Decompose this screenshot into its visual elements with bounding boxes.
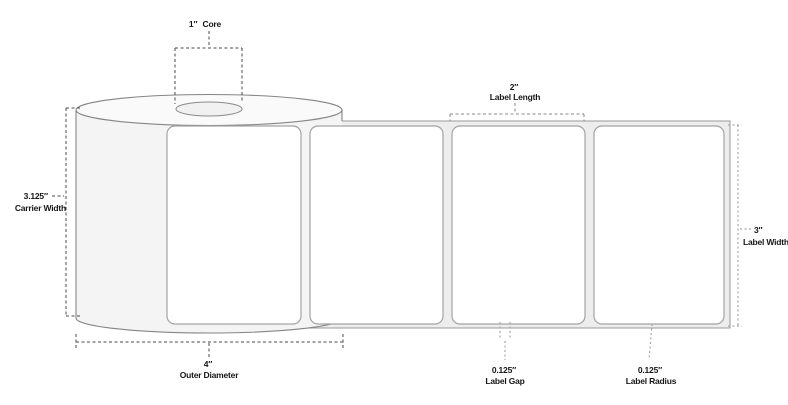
outer-diameter-bracket	[76, 334, 343, 350]
core-text: 1″ Core	[189, 19, 222, 29]
outer-diameter-annotation: 4″ Outer Diameter	[76, 334, 343, 380]
carrier-width-text: 3.125″ Carrier Width	[15, 191, 66, 213]
label-length-text: 2″ Label Length	[490, 82, 541, 102]
label-width-annotation: 3″ Label Width	[728, 125, 788, 326]
label-width-text: 3″ Label Width	[743, 225, 788, 247]
label-length-bracket	[450, 114, 584, 121]
label-radius-text: 0.125″ Label Radius	[626, 365, 677, 386]
label-radius-annotation: 0.125″ Label Radius	[626, 324, 677, 386]
label-gap-annotation: 0.125″ Label Gap	[485, 322, 524, 386]
core-annotation: 1″ Core	[175, 19, 242, 104]
carrier-width-annotation: 3.125″ Carrier Width	[15, 108, 80, 316]
label-gap-text: 0.125″ Label Gap	[485, 365, 524, 386]
outer-diameter-text: 4″ Outer Diameter	[180, 359, 240, 380]
label-4	[594, 126, 724, 324]
label-radius-pointer-line	[649, 324, 652, 360]
label-length-annotation: 2″ Label Length	[450, 82, 584, 121]
label-roll-diagram: 1″ Core 2″ Label Length 3.125″ Carrier W…	[0, 0, 788, 405]
roll-core-hole	[176, 102, 242, 116]
label-2	[310, 126, 443, 324]
label-3	[452, 126, 585, 324]
label-1	[167, 126, 301, 324]
